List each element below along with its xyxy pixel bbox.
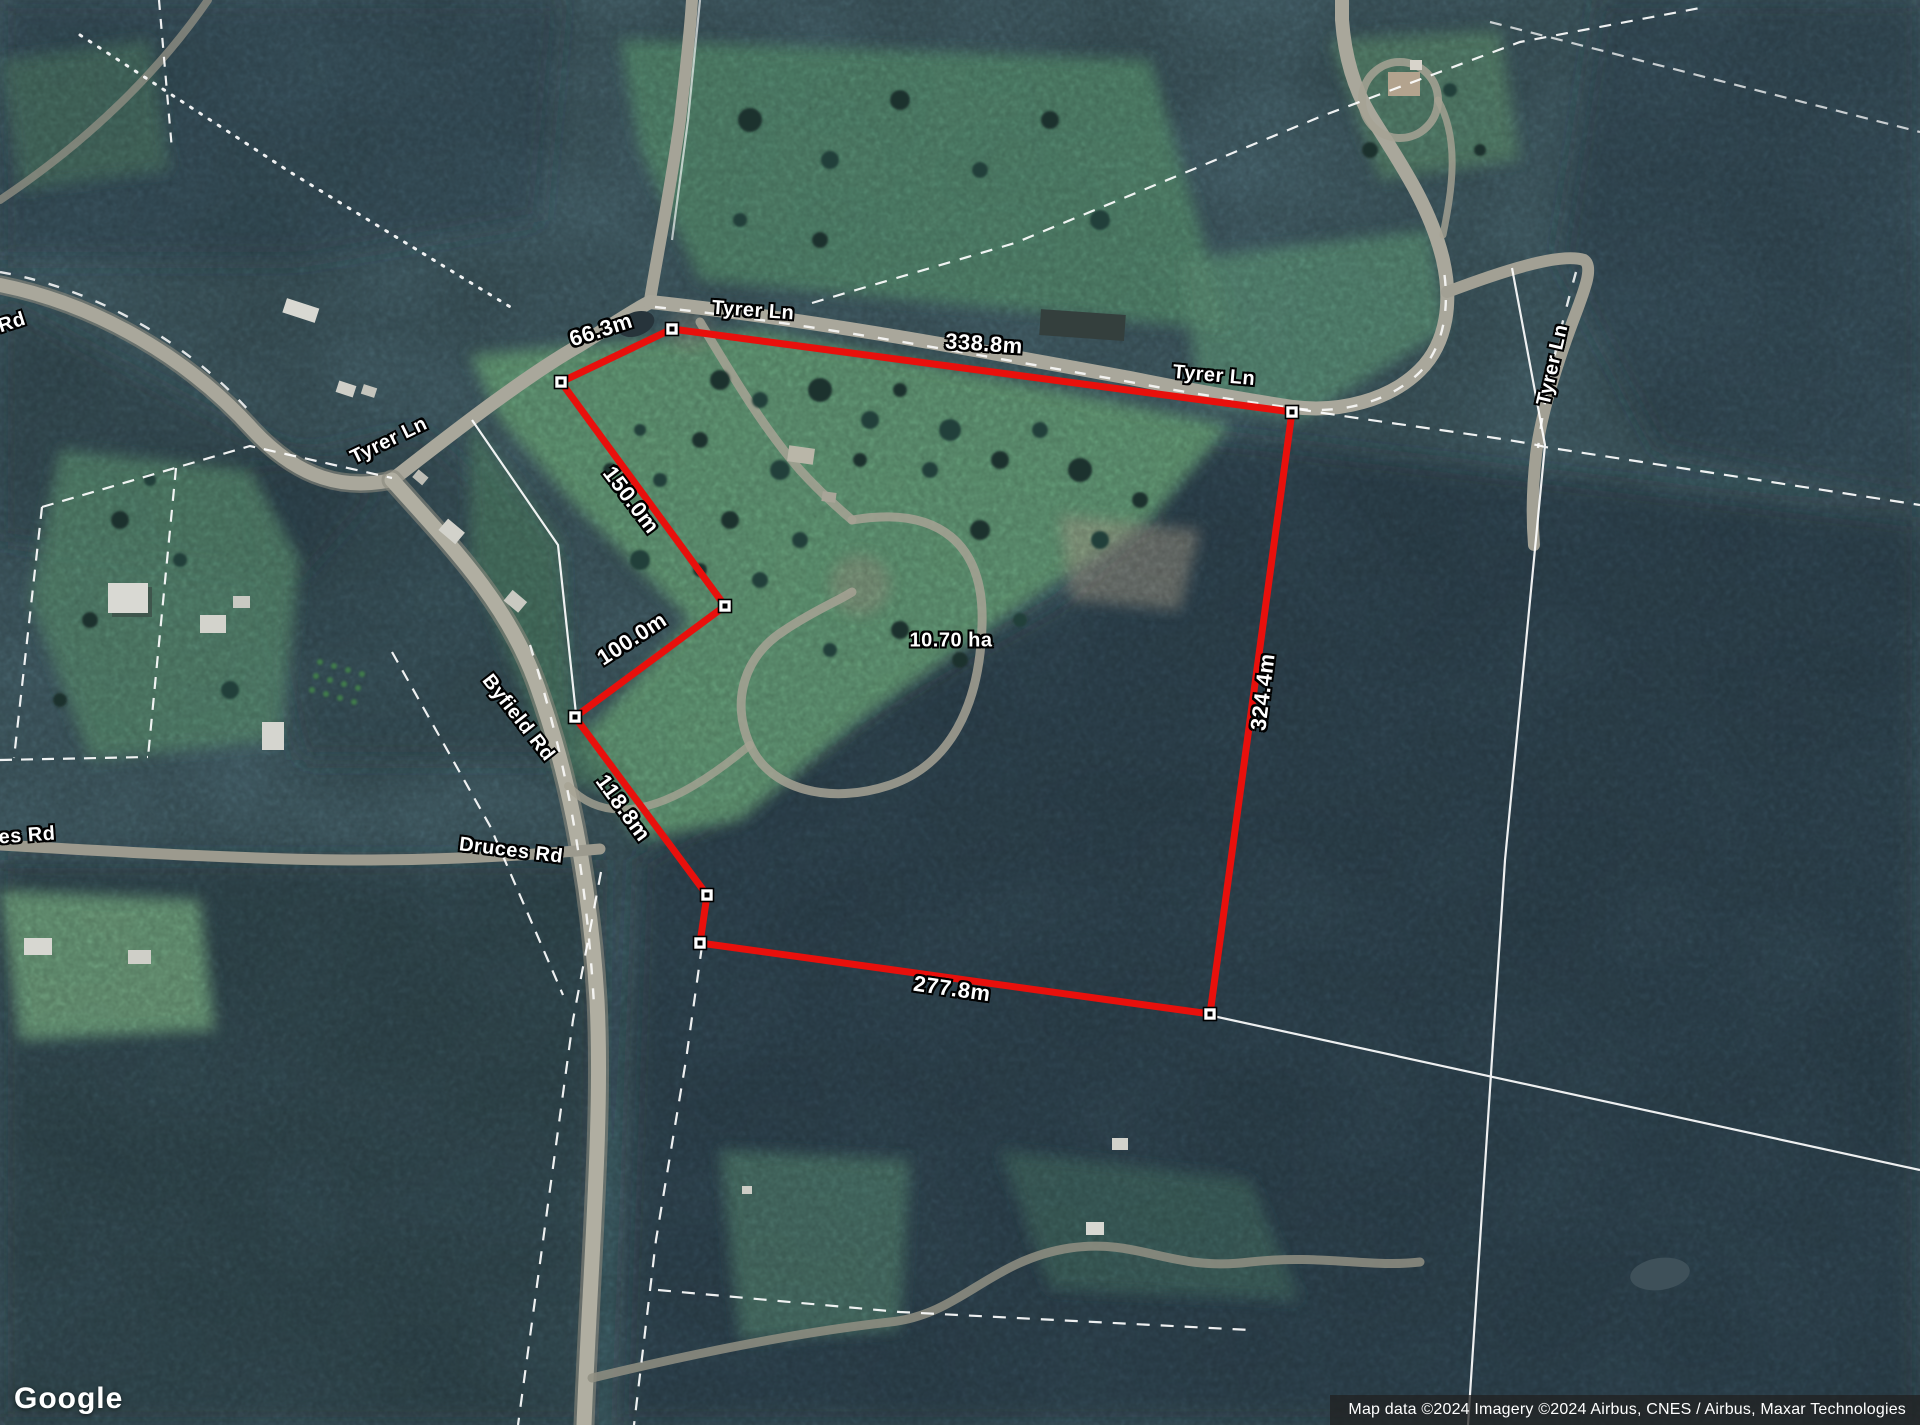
map-attribution: Map data ©2024 Imagery ©2024 Airbus, CNE… [1330,1395,1920,1425]
satellite-imagery [0,0,1920,1425]
vertex-handle[interactable] [719,600,732,613]
measurement-label-338-8m: 338.8m [944,328,1023,359]
google-logo[interactable]: Google [14,1382,123,1416]
area-label: 10.70 ha [910,630,993,653]
vertex-handle[interactable] [666,323,679,336]
vertex-handle[interactable] [1286,406,1299,419]
imagery-fine-texture [0,0,1920,1425]
vertex-handle[interactable] [701,889,714,902]
satellite-map-viewport[interactable]: 66.3m 338.8m 324.4m 277.8m 118.8m 100.0m… [0,0,1920,1425]
vertex-handle[interactable] [1204,1008,1217,1021]
attribution-text: Map data ©2024 Imagery ©2024 Airbus, CNE… [1348,1401,1906,1419]
vertex-handle[interactable] [569,711,582,724]
road-label-druces-rd-clipped: es Rd [0,823,56,850]
vertex-handle[interactable] [694,937,707,950]
vertex-handle[interactable] [555,376,568,389]
